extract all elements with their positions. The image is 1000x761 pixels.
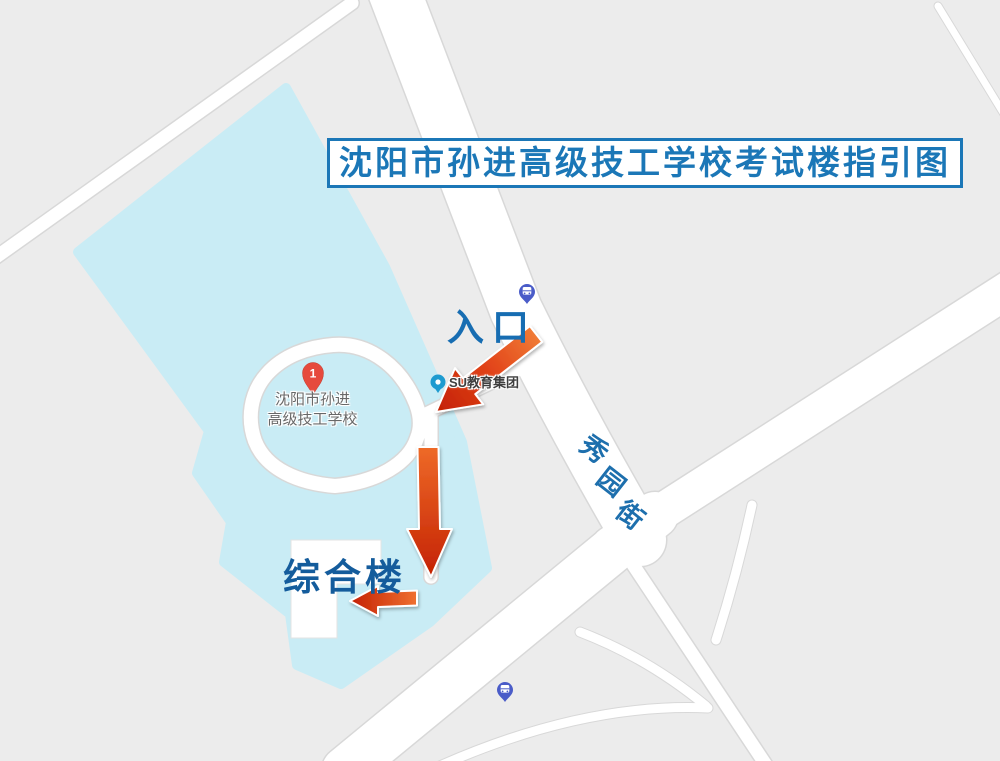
- entrance-label: 入口: [447, 297, 537, 351]
- school-pin-number: 1: [310, 367, 317, 381]
- building-label: 综合楼: [283, 547, 406, 601]
- school-name-line2: 高级技工学校: [230, 410, 395, 430]
- school-name-line1: 沈阳市孙进: [230, 390, 395, 410]
- school-name-label: 沈阳市孙进 高级技工学校: [230, 390, 395, 430]
- map-title: 沈阳市孙进高级技工学校考试楼指引图: [327, 138, 963, 188]
- guide-map-canvas: 1 沈阳市孙进高级技工学校考试楼指引图 入口 综合楼 沈阳市孙进 高级: [0, 0, 1000, 761]
- poi-icon-dot: [435, 379, 440, 384]
- poi-label: SU教育集团: [449, 372, 519, 391]
